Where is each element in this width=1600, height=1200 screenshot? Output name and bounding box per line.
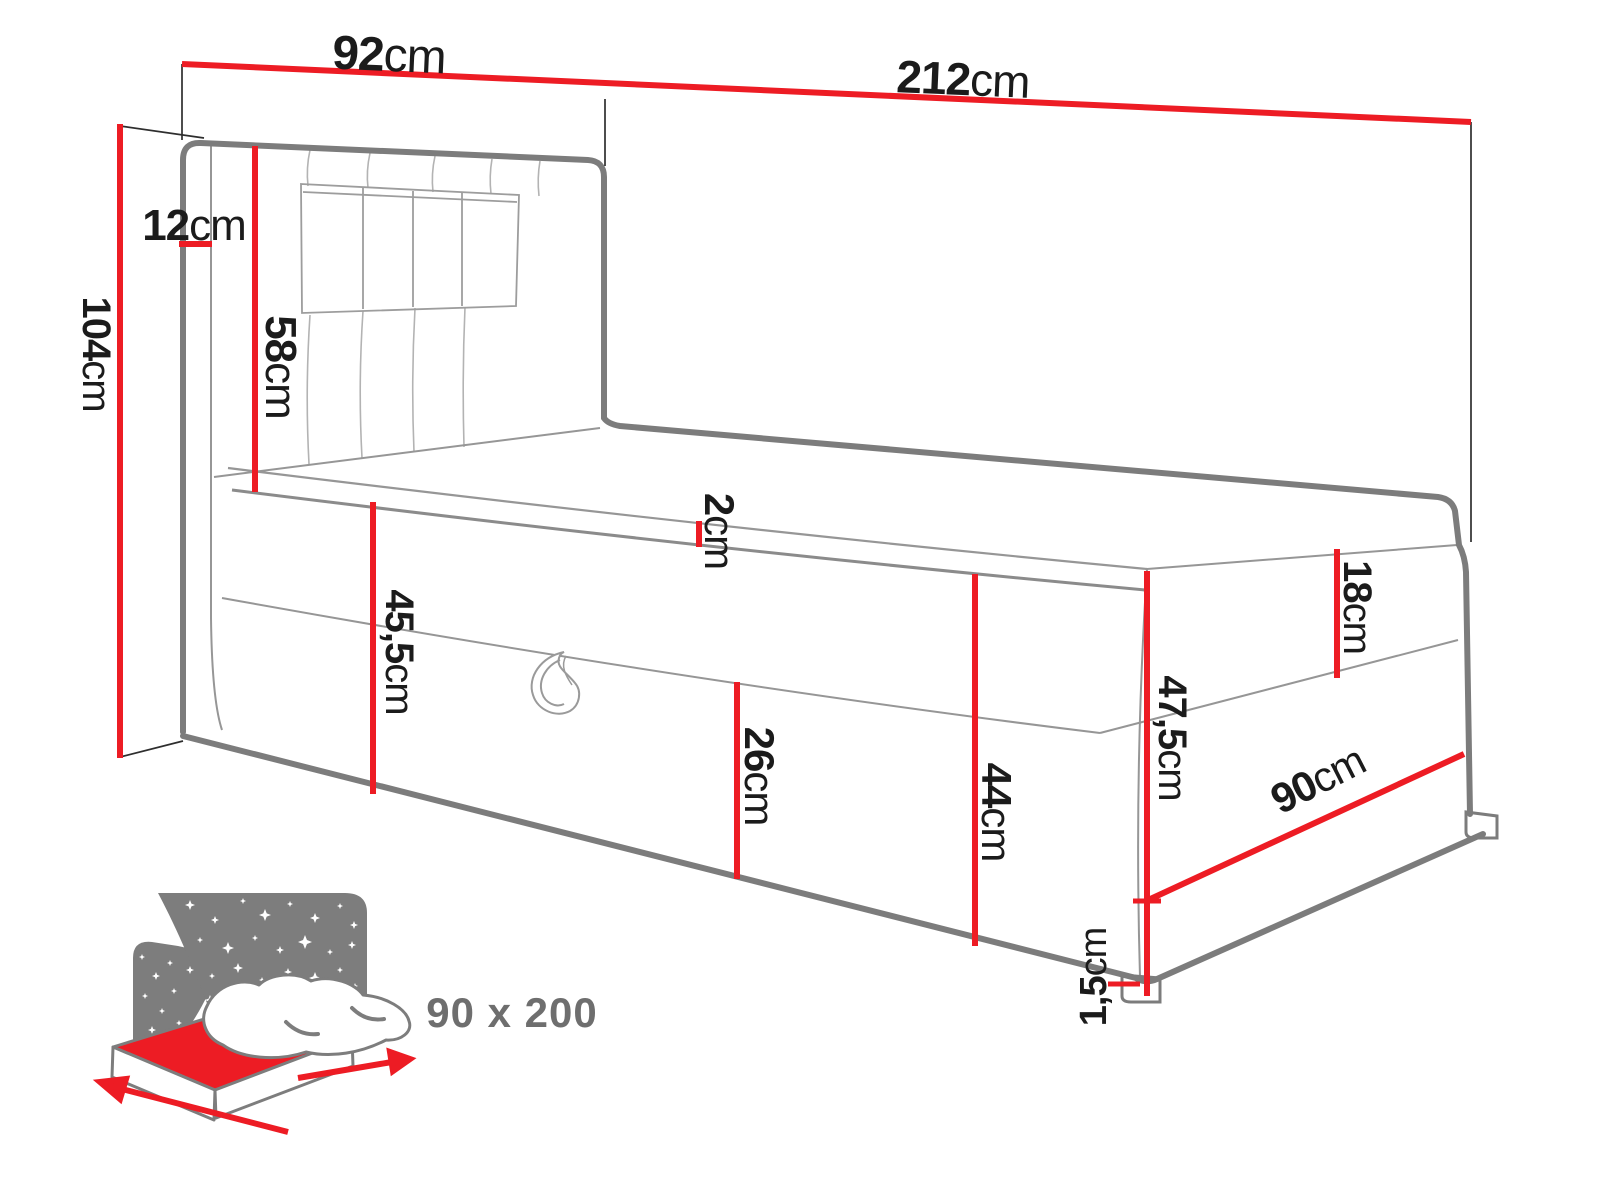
bed-thin-edges [211, 145, 1458, 977]
icon-duvet [204, 975, 410, 1058]
dim-label-headboard-depth: 12cm [142, 204, 246, 248]
mattress-size-label: 90 x 200 [426, 992, 598, 1034]
box-top-front-edge [232, 490, 1145, 590]
dim-label-leg-height: 1,5cm [1075, 928, 1113, 1026]
box-top-foot-edge [1147, 545, 1457, 569]
box-seam-front [222, 598, 1100, 733]
dim-label-headboard-width: 92cm [331, 30, 446, 83]
headboard-panel [301, 184, 519, 313]
mattress-front-edge [228, 468, 1147, 569]
dim-label-storage-box-height: 26cm [738, 727, 780, 826]
dim-label-total-length: 212cm [896, 53, 1031, 105]
headboard-bottom-edge [214, 428, 600, 477]
extension-lines [120, 64, 1471, 757]
mattress-size-icon [100, 893, 410, 1132]
dim-label-headboard-above-mattress: 58cm [258, 315, 302, 419]
bed-outline [183, 143, 1483, 981]
arrow-head-width [100, 1079, 126, 1099]
dimension-lines [120, 64, 1471, 996]
dim-label-base-height-front: 44cm [975, 763, 1017, 862]
dim-label-total-height: 104cm [76, 296, 116, 411]
bed-feet [1122, 812, 1497, 1002]
storage-handle [532, 652, 580, 714]
dim-label-top-box-height: 18cm [1337, 560, 1377, 654]
dim-label-base-height-foot: 47,5cm [1152, 675, 1192, 800]
diagram-canvas: 92cm 212cm 12cm 104cm 58cm 45,5cm 2cm 26… [0, 0, 1600, 1200]
dim-label-topper-thickness: 2cm [698, 493, 740, 569]
dim-label-side-height-head: 45,5cm [379, 589, 419, 714]
arrow-head-length [390, 1052, 410, 1071]
